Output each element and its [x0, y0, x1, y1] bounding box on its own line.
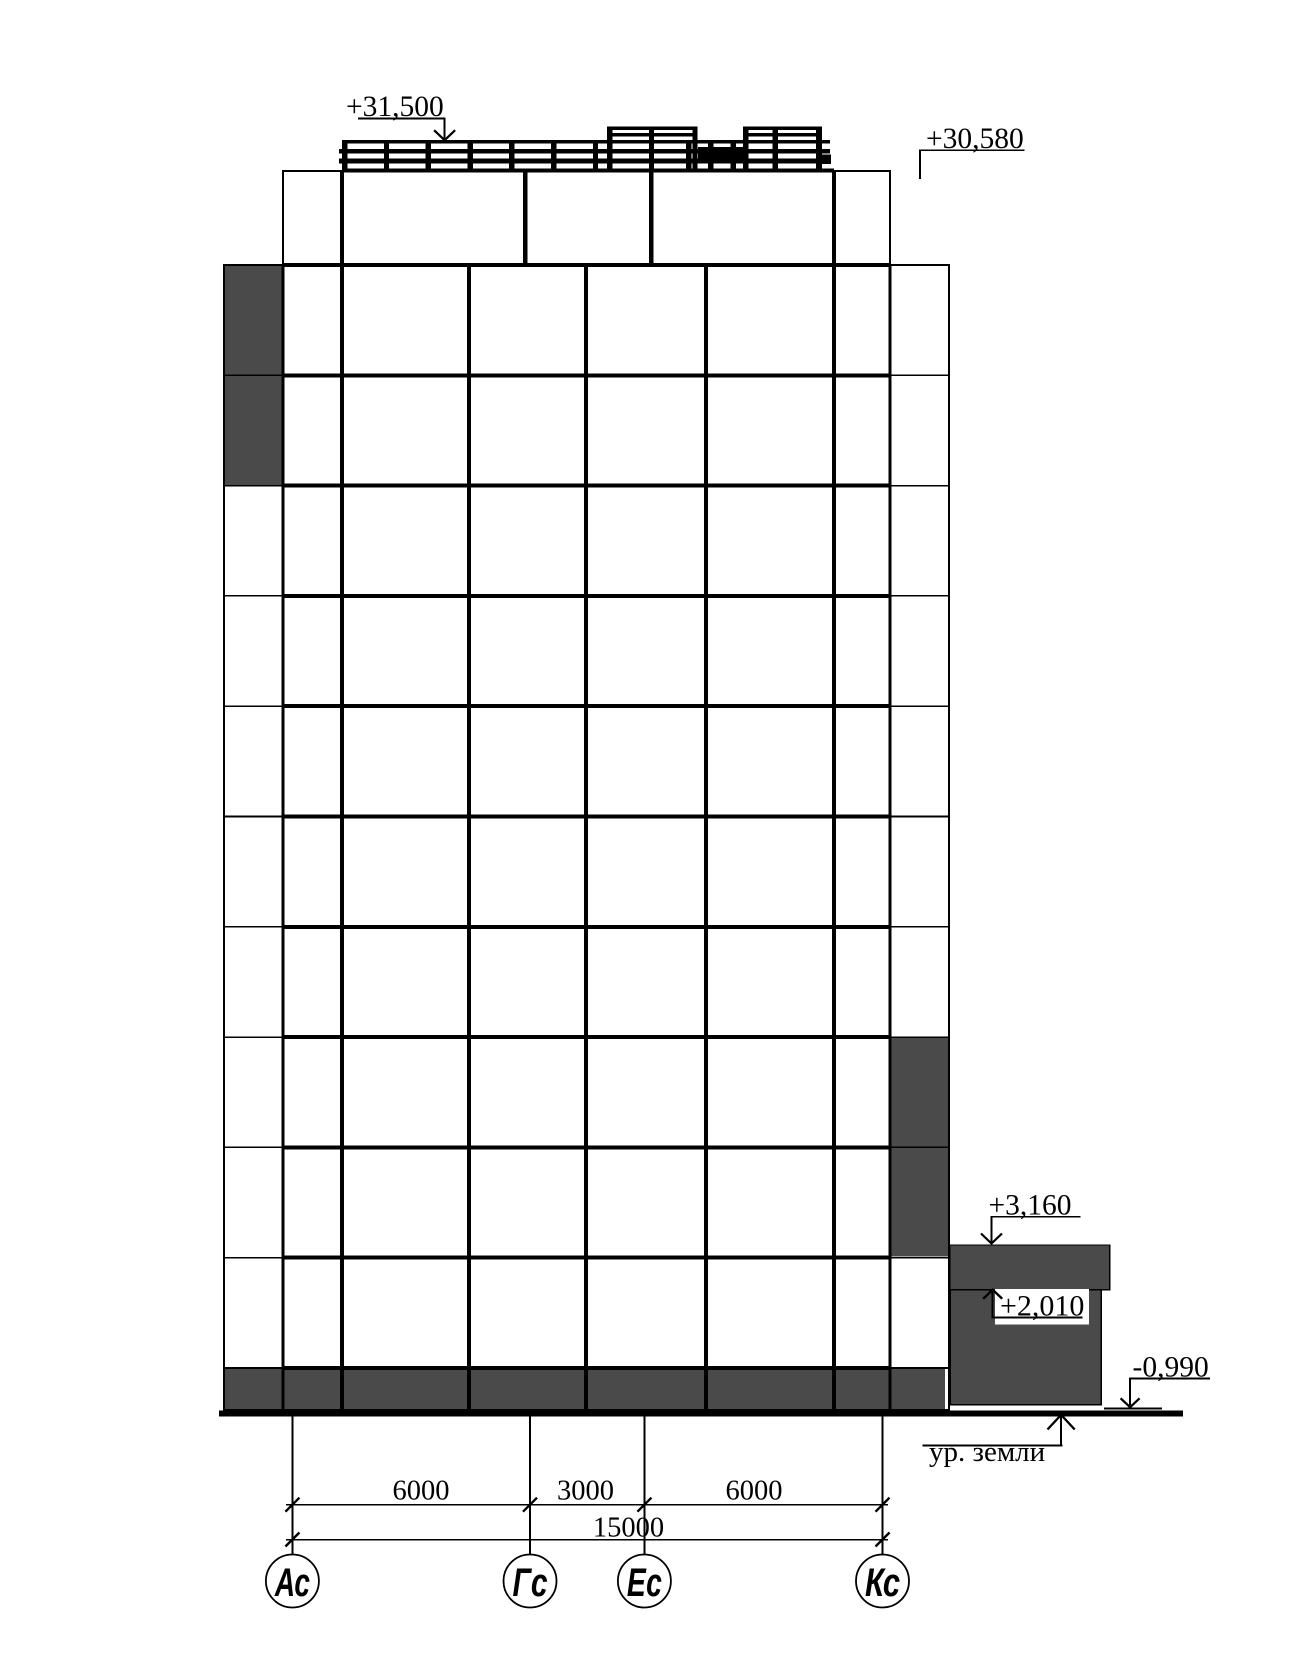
svg-text:15000: 15000 — [593, 1513, 664, 1544]
svg-text:Кс: Кс — [865, 1561, 900, 1605]
svg-text:6000: 6000 — [393, 1475, 450, 1506]
svg-text:Ас: Ас — [274, 1561, 310, 1605]
svg-text:ур. земли: ур. земли — [929, 1436, 1045, 1468]
svg-text:Гс: Гс — [513, 1561, 548, 1605]
svg-text:Ес: Ес — [627, 1561, 662, 1605]
svg-text:6000: 6000 — [726, 1475, 783, 1506]
svg-text:3000: 3000 — [557, 1475, 614, 1506]
